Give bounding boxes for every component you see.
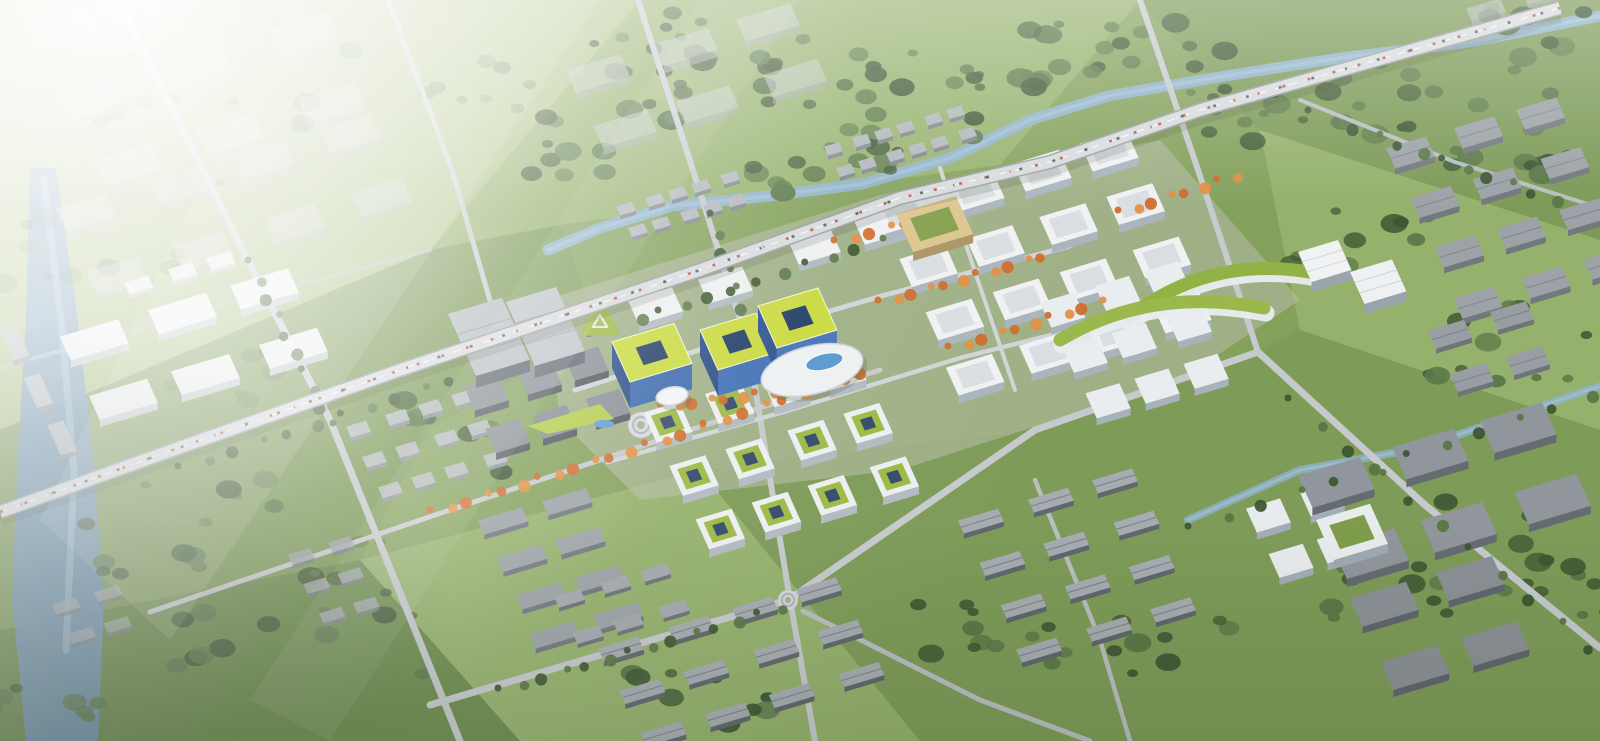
aerial-rendering: [0, 0, 1600, 741]
haze-overlay: [0, 0, 1600, 741]
aerial-rendering-stage: [0, 0, 1600, 741]
corner-shade: [0, 0, 1600, 741]
